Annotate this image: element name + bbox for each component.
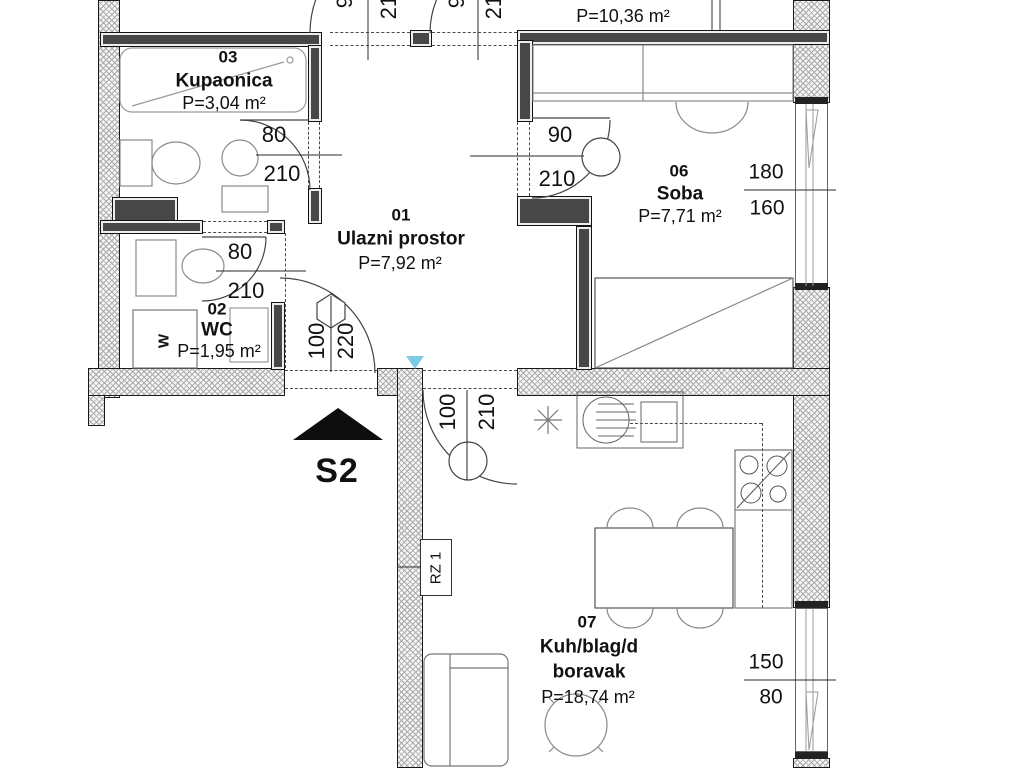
- living-window-width: 150: [748, 652, 783, 673]
- wc-door-opening: [203, 221, 267, 222]
- toilet: [136, 240, 224, 296]
- top-door-left-opening: [330, 32, 410, 33]
- wall-bedroom-left-step: [517, 196, 592, 226]
- top-door-left-width: 90: [334, 0, 356, 8]
- wall-bedroom-left-lower: [576, 226, 592, 370]
- kitchen-sink-counter: [577, 392, 683, 448]
- wc-number: 02: [208, 301, 227, 318]
- wall-top-pier: [410, 30, 432, 47]
- wall-entry-left: [88, 368, 285, 396]
- bedroom-number: 06: [670, 163, 689, 180]
- living-name: Kuh/blag/d: [540, 638, 638, 657]
- window-cap: [795, 752, 828, 759]
- dining-table: [595, 528, 733, 608]
- wc-area: P=1,95 m²: [177, 342, 261, 360]
- living-door-height: 210: [476, 394, 498, 431]
- wc-door-opening: [203, 232, 267, 233]
- bath-door-width: 80: [262, 124, 286, 146]
- bedroom-area: P=7,71 m²: [638, 207, 722, 225]
- wc-door-width: 80: [228, 241, 252, 263]
- counter-centerline: [630, 423, 762, 424]
- living-window: [795, 608, 828, 752]
- window-cap: [795, 601, 828, 608]
- riser-box: RZ 1: [420, 539, 452, 596]
- wall-right-bottom: [793, 758, 830, 768]
- entry-door-height: 220: [335, 323, 357, 360]
- entry-area: P=7,92 m²: [358, 254, 442, 272]
- wall-bedroom-living: [517, 368, 830, 396]
- sofa: [424, 654, 508, 766]
- bath-door-opening: [319, 122, 320, 188]
- riser-label: RZ 1: [428, 551, 445, 584]
- stove: [735, 450, 792, 510]
- hall-boundary: [285, 233, 286, 368]
- entry-door-opening: [285, 370, 377, 371]
- bedroom-door-height: 210: [539, 168, 576, 190]
- top-door-right-height: 210: [483, 0, 505, 19]
- wall-bath-right-upper: [308, 45, 322, 122]
- floor-plan: 03 Kupaonica P=3,04 m² 02 WC P=1,95 m² 0…: [0, 0, 1024, 768]
- wall-right-top: [793, 0, 830, 103]
- living-window-sill: 80: [759, 687, 782, 708]
- toilet: [120, 140, 200, 186]
- bedroom-top-name: Soba: [599, 0, 645, 3]
- wall-bedroom-top: [517, 30, 830, 45]
- bedroom-window-sill: 160: [749, 198, 784, 219]
- light-symbol: [534, 406, 562, 434]
- bath-door-height: 210: [264, 163, 301, 185]
- living-number: 07: [578, 614, 597, 631]
- wall-right-lower: [793, 390, 830, 608]
- wall-bath-top: [100, 32, 322, 47]
- top-door-right-opening: [432, 45, 517, 46]
- bedroom-name: Soba: [657, 185, 703, 204]
- dining-chair: [607, 508, 723, 628]
- desk: [533, 45, 793, 101]
- entrance-marker-triangle: [293, 408, 383, 440]
- entry-door-opening: [285, 388, 377, 389]
- living-name2: boravak: [553, 663, 626, 682]
- wall-wc-right: [271, 302, 285, 370]
- wall-wc-top-right: [267, 220, 285, 234]
- top-door-left-height: 210: [378, 0, 400, 19]
- window-cap: [795, 283, 828, 290]
- top-door-right-opening: [432, 32, 517, 33]
- entry-number: 01: [392, 207, 411, 224]
- washbasin: [222, 140, 268, 212]
- bedroom-door-opening: [517, 122, 518, 196]
- top-door-right-width: 90: [446, 0, 468, 8]
- wc-door-height: 210: [228, 280, 265, 302]
- bedroom-door-width: 90: [548, 124, 572, 146]
- bedroom-door-opening: [529, 122, 530, 196]
- unit-label: S2: [315, 454, 359, 488]
- counter-centerline: [762, 423, 763, 608]
- bath-name: Kupaonica: [175, 72, 272, 91]
- living-area: P=18,74 m²: [541, 688, 635, 706]
- living-door-width: 100: [437, 394, 459, 431]
- wall-wc-top-left: [100, 220, 203, 234]
- bath-area: P=3,04 m²: [182, 94, 266, 112]
- living-door-opening: [423, 370, 517, 371]
- wall-bath-right-lower: [308, 188, 322, 224]
- window-cap: [795, 97, 828, 104]
- bedroom-window: [795, 103, 828, 287]
- wall-bedroom-left-upper: [517, 40, 533, 122]
- bedroom-window-width: 180: [748, 162, 783, 183]
- wc-name: WC: [201, 321, 233, 340]
- entry-name: Ulazni prostor: [337, 230, 465, 249]
- kitchen-counter-right: [735, 510, 792, 608]
- office-chair: [676, 102, 748, 133]
- washer-label: W: [157, 334, 172, 348]
- bath-door-opening: [308, 122, 309, 188]
- living-door-opening: [423, 388, 517, 389]
- bed: [595, 278, 793, 368]
- bath-number: 03: [219, 49, 238, 66]
- partition-line: [712, 0, 720, 30]
- bedroom-top-area: P=10,36 m²: [576, 7, 670, 25]
- entry-door-width: 100: [306, 323, 328, 360]
- top-door-left-opening: [330, 45, 410, 46]
